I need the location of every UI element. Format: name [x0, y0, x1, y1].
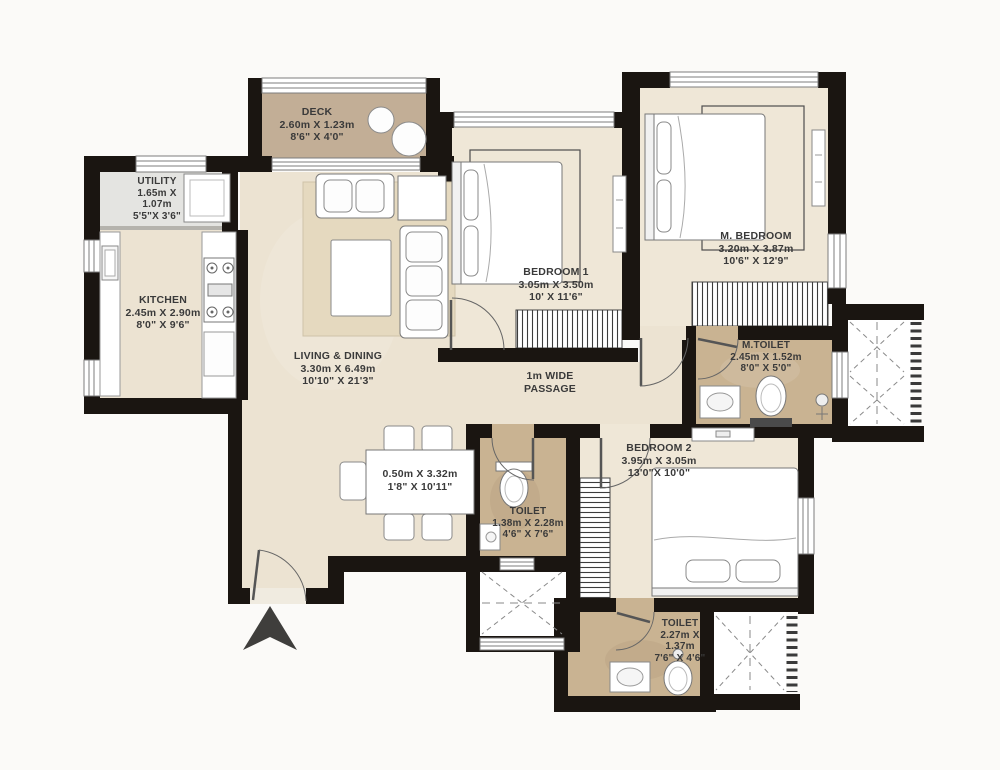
toilet-shaft-vent — [500, 558, 534, 570]
utility-name: UTILITY — [133, 176, 181, 188]
master-bedroom-window — [670, 72, 818, 87]
master-bedroom-wardrobe — [692, 282, 828, 326]
deck-dim-m: 2.60m X 1.23m — [280, 119, 355, 132]
common-toilet-name: TOILET — [492, 506, 564, 518]
dining-table-dim-m: 0.50m X 3.32m — [383, 468, 458, 481]
wall — [832, 426, 924, 442]
kitchen-dim-m: 2.45m X 2.90m — [126, 307, 201, 320]
bedroom1-dim-ft: 10' X 11'6" — [519, 291, 594, 304]
master-bedroom-dim-ft: 10'6" X 12'9" — [719, 255, 794, 268]
wall — [554, 598, 616, 612]
master-toilet-label: M.TOILET 2.45m X 1.52m 8'0" X 5'0" — [730, 340, 802, 375]
dining-table-label: 0.50m X 3.32m 1'8" X 10'11" — [383, 468, 458, 493]
dining-table-dim-ft: 1'8" X 10'11" — [383, 481, 458, 494]
coffee-table — [331, 240, 391, 316]
burner-dot — [211, 267, 214, 270]
master-toilet-dim-ft: 8'0" X 5'0" — [730, 363, 802, 375]
utility-fittings — [184, 174, 230, 222]
second-toilet-dim-m1: 2.27m X — [655, 630, 706, 642]
threshold — [616, 598, 654, 612]
bedroom1-name: BEDROOM 1 — [519, 266, 594, 279]
pillow — [464, 170, 478, 220]
pillow — [686, 560, 730, 582]
utility-label: UTILITY 1.65m X 1.07m 5'5"X 3'6" — [133, 176, 181, 222]
wall — [682, 338, 696, 424]
utility-dim-m1: 1.65m X — [133, 188, 181, 200]
kitchen-window-2 — [84, 360, 100, 396]
wall — [228, 588, 250, 604]
fridge — [204, 332, 234, 376]
master-toilet-name: M.TOILET — [730, 340, 802, 352]
bedroom2-wardrobe — [580, 478, 610, 598]
entrance-arrow — [243, 606, 297, 650]
dining-chair — [384, 426, 414, 452]
passage-name-1: 1m WIDE — [524, 370, 576, 383]
utility-dim-ft: 5'5"X 3'6" — [133, 211, 181, 223]
kitchen-label: KITCHEN 2.45m X 2.90m 8'0" X 9'6" — [126, 294, 201, 332]
bedroom2-label: BEDROOM 2 3.95m X 3.05m 13'0"X 10'0" — [622, 442, 697, 480]
utility-window — [136, 156, 206, 172]
bedroom2-dim-m: 3.95m X 3.05m — [622, 455, 697, 468]
wall — [700, 694, 800, 710]
bedroom2-door-threshold — [600, 424, 650, 438]
bedroom2-window — [798, 498, 814, 554]
threshold — [640, 326, 686, 340]
threshold — [696, 326, 738, 338]
wall — [328, 556, 480, 572]
utility-dim-m2: 1.07m — [133, 199, 181, 211]
burner-dot — [227, 267, 230, 270]
dining-chair — [422, 514, 452, 540]
living-dining-dim-ft: 10'10" X 21'3" — [294, 375, 382, 388]
shaft-bottom-window — [480, 638, 564, 650]
duct-shaft-bottom-right — [714, 612, 786, 694]
wall — [738, 326, 844, 340]
stove-grill — [208, 284, 232, 296]
wall — [438, 348, 638, 362]
master-bedroom-side-window — [828, 234, 846, 288]
living-dining-dim-m: 3.30m X 6.49m — [294, 363, 382, 376]
passage-name-2: PASSAGE — [524, 383, 576, 396]
bedroom1-label: BEDROOM 1 3.05m X 3.50m 10' X 11'6" — [519, 266, 594, 304]
sink-basin — [707, 393, 733, 411]
pillow — [736, 560, 780, 582]
pillow — [464, 226, 478, 276]
deck-label: DECK 2.60m X 1.23m 8'6" X 4'0" — [280, 106, 355, 144]
bedroom2-name: BEDROOM 2 — [622, 442, 697, 455]
master-toilet-dim-m: 2.45m X 1.52m — [730, 352, 802, 364]
wall — [654, 598, 814, 612]
bedroom2-dim-ft: 13'0"X 10'0" — [622, 467, 697, 480]
passage-label: 1m WIDE PASSAGE — [524, 370, 576, 395]
master-bedroom-label: M. BEDROOM 3.20m X 3.87m 10'6" X 12'9" — [719, 230, 794, 268]
wall — [554, 696, 716, 712]
kitchen-sink-basin — [105, 250, 115, 276]
wall — [566, 424, 580, 570]
second-toilet-label: TOILET 2.27m X 1.37m 7'6" X 4'6" — [655, 618, 706, 664]
second-toilet-dim-m2: 1.37m — [655, 641, 706, 653]
dining-chair — [340, 462, 366, 500]
bedroom1-window — [454, 112, 614, 127]
entrance-threshold — [250, 588, 306, 604]
washing-machine — [184, 174, 230, 222]
master-bedroom-dresser — [812, 130, 825, 206]
bedroom2-headboard — [652, 588, 798, 596]
floor-plan-canvas: DECK 2.60m X 1.23m 8'6" X 4'0" UTILITY 1… — [0, 0, 1000, 770]
sink-basin — [617, 668, 643, 686]
dining-chair — [422, 426, 452, 452]
living-sofa-set — [303, 174, 455, 338]
wc — [756, 376, 786, 416]
sofa-cushion — [356, 180, 384, 212]
wall — [554, 598, 568, 710]
wall — [686, 326, 696, 340]
wall — [832, 304, 924, 320]
bedroom1-dim-m: 3.05m X 3.50m — [519, 279, 594, 292]
common-toilet-label: TOILET 1.38m X 2.28m 4'6" X 7'6" — [492, 506, 564, 541]
threshold — [492, 424, 534, 438]
utility-partition — [100, 226, 222, 230]
wall — [236, 230, 248, 400]
wall — [622, 326, 640, 340]
sofa-cushion — [406, 232, 442, 262]
common-toilet-dim-m: 1.38m X 2.28m — [492, 518, 564, 530]
deck-stool — [368, 107, 394, 133]
sofa-cushion — [406, 266, 442, 296]
burner-dot — [211, 311, 214, 314]
dining-chair — [384, 514, 414, 540]
kitchen-name: KITCHEN — [126, 294, 201, 307]
common-toilet-dim-ft: 4'6" X 7'6" — [492, 529, 564, 541]
kitchen-dim-ft: 8'0" X 9'6" — [126, 319, 201, 332]
bedroom1-dresser — [613, 176, 626, 252]
master-bed-headboard — [645, 114, 654, 240]
living-dining-label: LIVING & DINING 3.30m X 6.49m 10'10" X 2… — [294, 350, 382, 388]
bedroom1-wardrobe — [516, 310, 622, 348]
wall — [84, 398, 242, 414]
deck-window — [262, 78, 426, 93]
wall — [438, 112, 454, 128]
pillow — [657, 180, 671, 232]
wc — [664, 661, 692, 695]
shower-icon — [816, 394, 828, 406]
corner-table — [398, 176, 446, 220]
deck-dim-ft: 8'6" X 4'0" — [280, 131, 355, 144]
deck-name: DECK — [280, 106, 355, 119]
living-dining-name: LIVING & DINING — [294, 350, 382, 363]
bedroom1-headboard — [452, 162, 461, 284]
deck-sliding-door — [272, 158, 420, 170]
burner-dot — [227, 311, 230, 314]
floor-plan-drawing — [0, 0, 1000, 770]
wall — [622, 72, 670, 88]
master-bedroom-name: M. BEDROOM — [719, 230, 794, 243]
wall — [206, 156, 272, 172]
master-toilet-window — [832, 352, 848, 398]
wall — [228, 414, 242, 592]
tv — [716, 431, 730, 437]
second-toilet-name: TOILET — [655, 618, 706, 630]
duct-shaft-right — [848, 320, 912, 426]
wc-tank — [750, 418, 792, 427]
second-toilet-dim-ft: 7'6" X 4'6" — [655, 653, 706, 665]
sofa-cushion — [406, 300, 442, 330]
kitchen-window-1 — [84, 240, 100, 272]
master-bedroom-dim-m: 3.20m X 3.87m — [719, 243, 794, 256]
pillow — [657, 122, 671, 174]
sofa-cushion — [324, 180, 352, 212]
